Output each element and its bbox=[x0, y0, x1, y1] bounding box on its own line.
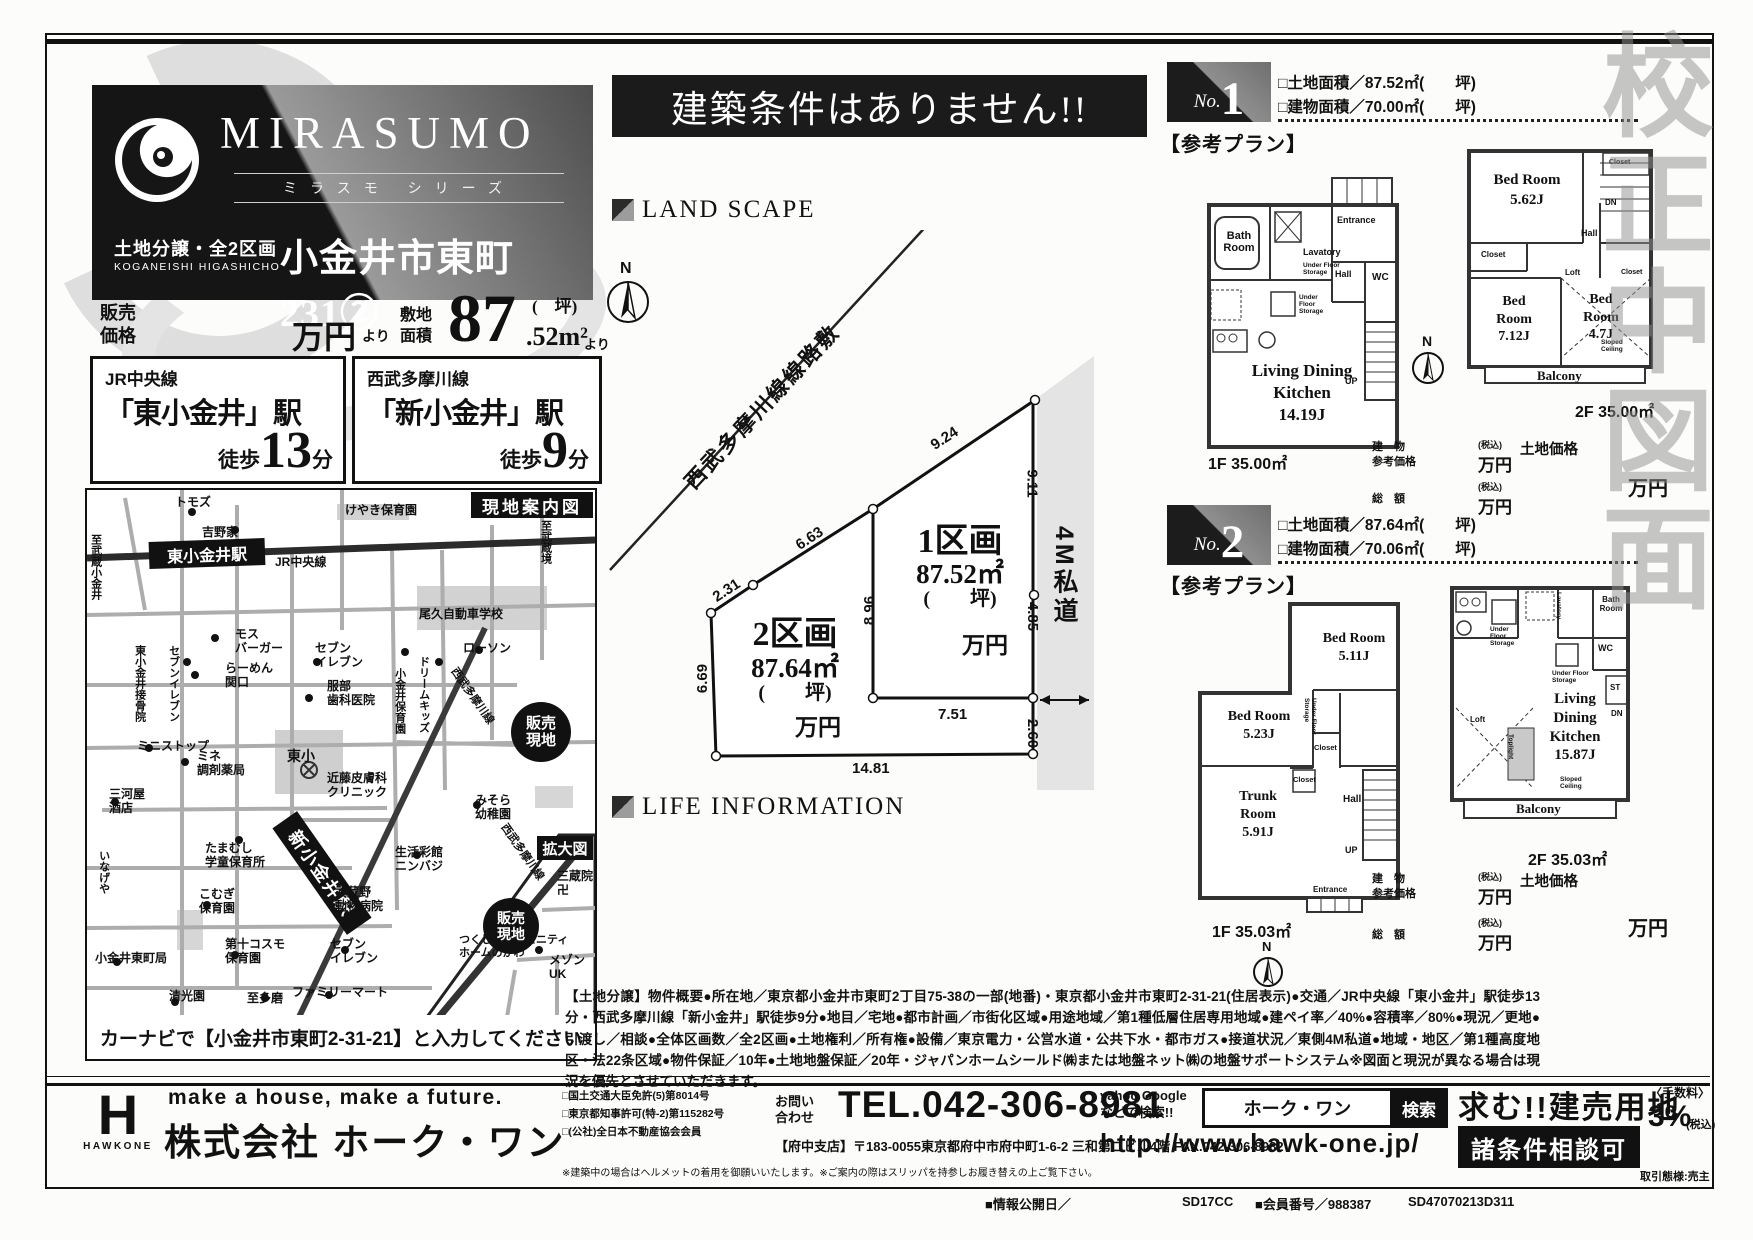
room-label-wc: WC bbox=[1372, 272, 1389, 283]
section-square-icon bbox=[612, 796, 634, 818]
plan1-1f-floorplan: Bath Room Lavatory Under Floor Storage E… bbox=[1207, 172, 1399, 467]
map-label: 三河屋 酒店 bbox=[109, 788, 145, 816]
brand-series: ミラスモ シリーズ bbox=[234, 173, 564, 203]
walk-unit: 分 bbox=[312, 449, 333, 472]
man-unit: 万円 bbox=[1478, 888, 1512, 907]
room-label-lavatory: Lavatory bbox=[1303, 248, 1341, 258]
search-hint: yahoo Google などで検索!! bbox=[1100, 1088, 1187, 1122]
map-label: 服部 歯科医院 bbox=[327, 680, 375, 708]
map-label: らーめん 関口 bbox=[225, 662, 273, 690]
plan1-ref-label: 【参考プラン】 bbox=[1160, 128, 1307, 157]
plan2-land-area: □土地面積／87.64㎡( 坪) bbox=[1278, 514, 1476, 538]
map-label: 小金井保育園 bbox=[393, 668, 406, 734]
member-number: ■会員番号／988387 bbox=[1255, 1194, 1371, 1213]
room-label-ufs2: Under Floor Storage bbox=[1299, 294, 1323, 315]
footer-slogan: make a house, make a future. bbox=[168, 1086, 503, 1110]
plan2-bldg-price-label: 建 物 参考価格 bbox=[1372, 872, 1416, 902]
room-label-closet: Closet bbox=[1481, 251, 1505, 260]
map-label: けやき保育園 bbox=[345, 504, 417, 518]
plan1-areas: □土地面積／87.52㎡( 坪) □建物面積／70.00㎡( 坪) bbox=[1278, 72, 1476, 120]
map-label: 至武蔵小金井 bbox=[89, 534, 102, 600]
rail-line-name: 西武多摩川線 bbox=[367, 365, 589, 390]
room-label-entrance: Entrance bbox=[1337, 216, 1376, 226]
dimension-label: 4.85 bbox=[1024, 602, 1041, 631]
north-label: N bbox=[620, 260, 632, 278]
man-unit: 万円 bbox=[1478, 498, 1512, 517]
fee-label: 〈手数料〉 bbox=[1650, 1084, 1710, 1101]
map-label: メゾン UK bbox=[549, 954, 585, 982]
plan1-bldg-area: □建物面積／70.00㎡( 坪) bbox=[1278, 96, 1476, 120]
map-label: モス バーガー bbox=[235, 628, 283, 656]
map-label: 吉野家 bbox=[202, 526, 238, 540]
map-label: 近藤皮膚科 クリニック bbox=[327, 772, 387, 800]
map-label: 生活彩館 ニンバジ bbox=[395, 846, 443, 874]
section-lifeinfo: LIFE INFORMATION bbox=[612, 793, 905, 821]
hawkone-logo: H HAWKONE bbox=[78, 1088, 158, 1152]
site-area-value: 87 bbox=[448, 284, 516, 352]
map-label: 東小 bbox=[287, 748, 315, 764]
room-label-loft: Loft bbox=[1470, 716, 1485, 725]
plot-drawing bbox=[600, 230, 1100, 790]
station-badge-higashikoganei: 東小金井駅 bbox=[149, 538, 266, 569]
license-list: □国土交通大臣免許(5)第8014号 □東京都知事許可(特-2)第115282号… bbox=[562, 1088, 724, 1142]
car-navi-note: カーナビで【小金井市東町2-31-21】と入力してください bbox=[85, 1015, 597, 1061]
lot2-tsubo: ( 坪) bbox=[730, 676, 860, 705]
plan2-ref-label: 【参考プラン】 bbox=[1160, 570, 1307, 599]
rail-line-name: JR中央線 bbox=[105, 365, 333, 390]
info-open-date: ■情報公開日／ bbox=[985, 1194, 1071, 1213]
doc-code-1: SD17CC bbox=[1182, 1194, 1233, 1209]
map-label: 尾久自動車学校 bbox=[419, 608, 503, 622]
map-label: JR中央線 bbox=[275, 556, 326, 570]
site-area-label: 敷地 面積 bbox=[400, 306, 432, 348]
website-url: http://www.hawk-one.jp/ bbox=[1100, 1128, 1420, 1159]
map-label: 清光園 bbox=[169, 990, 205, 1004]
section-landscape: LAND SCAPE bbox=[612, 196, 816, 224]
lot1-tsubo: ( 坪) bbox=[895, 582, 1025, 611]
flyer-page: MIRASUMO ミラスモ シリーズ 土地分譲・全2区画 KOGANEISHI … bbox=[0, 0, 1753, 1240]
map-title-badge: 現地案内図 bbox=[471, 492, 593, 518]
room-label-closet: Closet bbox=[1293, 776, 1316, 784]
plan1-number-badge: No. 1 bbox=[1167, 62, 1271, 122]
map-label: 三蔵院 卍 bbox=[557, 870, 593, 898]
plan2-total-label: 総 額 bbox=[1372, 928, 1405, 943]
svg-text:N: N bbox=[1262, 939, 1271, 954]
map-label: 武蔵野 動物病院 bbox=[335, 886, 383, 914]
room-label-hall: Hall bbox=[1335, 270, 1352, 280]
site-area-decimal: .52m² bbox=[526, 322, 588, 352]
room-label-closet: Closet bbox=[1314, 744, 1337, 752]
plan-no-value: 2 bbox=[1221, 523, 1245, 563]
map-label: こむぎ 保育園 bbox=[199, 888, 235, 916]
plan-no-prefix: No. bbox=[1194, 91, 1221, 113]
lot1-price: 万円 bbox=[962, 626, 1008, 660]
walk-label: 徒歩 bbox=[218, 449, 260, 472]
proof-watermark: 校正中図面 bbox=[1592, 28, 1704, 618]
plan1-land-price-label: 土地価格 bbox=[1520, 438, 1578, 459]
plan1-total-price: (税込)万円 bbox=[1478, 480, 1512, 518]
plan2-1f-floorplan: Bed Room 5.11J Bed Room 5.23J Trunk Room… bbox=[1195, 598, 1403, 916]
room-label-entrance: Entrance bbox=[1313, 886, 1347, 895]
access-box-seibu: 西武多摩川線 「新小金井」駅 徒歩9分 bbox=[352, 356, 602, 484]
sale-site-marker: 販売 現地 bbox=[483, 898, 539, 954]
doc-code-2: SD47070213D311 bbox=[1408, 1194, 1514, 1209]
sale-site-marker: 販売 現地 bbox=[511, 702, 571, 762]
map-label: 至武蔵境 bbox=[539, 520, 552, 564]
plan2-areas: □土地面積／87.64㎡( 坪) □建物面積／70.06㎡( 坪) bbox=[1278, 514, 1476, 562]
room-label-bath: Bath Room bbox=[1213, 230, 1265, 254]
man-unit: 万円 bbox=[1478, 934, 1512, 953]
hawkone-logo-text: HAWKONE bbox=[78, 1141, 158, 1152]
area-map: トモズ 吉野家 至武蔵小金井 東小金井駅 JR中央線 けやき保育園 現地案内図 … bbox=[85, 488, 597, 1019]
plan1-land-area: □土地面積／87.52㎡( 坪) bbox=[1278, 72, 1476, 96]
dotted-divider bbox=[1278, 561, 1638, 564]
private-road-label: 4M私道 bbox=[1038, 526, 1082, 627]
fee-tax-note: (税込) bbox=[1686, 1116, 1715, 1132]
room-label-loft: Loft bbox=[1565, 269, 1580, 278]
dotted-divider bbox=[1278, 119, 1638, 122]
top-rule bbox=[45, 39, 1714, 44]
land-plot-diagram: N 西武多摩川線線路敷 4M私道 9.24 6.63 2.31 6.69 8.9… bbox=[600, 230, 1100, 790]
room-label-balcony: Balcony bbox=[1516, 802, 1561, 816]
tax-note: (税込) bbox=[1478, 916, 1512, 929]
room-label-bed1: Bed Room 5.62J bbox=[1477, 171, 1577, 210]
plan-no-prefix: No. bbox=[1194, 534, 1221, 556]
compass-icon: N bbox=[1408, 332, 1448, 392]
room-label-sloped: Sloped Ceiling bbox=[1560, 776, 1582, 790]
inset-title-badge: 拡大図 bbox=[537, 836, 593, 860]
access-box-jr: JR中央線 「東小金井」駅 徒歩13分 bbox=[90, 356, 346, 484]
section-title: LIFE INFORMATION bbox=[642, 793, 905, 821]
walk-unit: 分 bbox=[568, 449, 589, 472]
room-label-bed2: Bed Room 5.23J bbox=[1209, 708, 1309, 744]
map-label: セブン イレブン bbox=[330, 938, 378, 966]
dimension-label: 7.51 bbox=[938, 706, 967, 723]
walk-minutes: 13 bbox=[260, 422, 312, 479]
walk-label: 徒歩 bbox=[500, 449, 542, 472]
plan1-total-label: 総 額 bbox=[1372, 492, 1405, 507]
room-label-ldk: Living Dining Kitchen 15.87J bbox=[1530, 690, 1620, 765]
conditions-badge: 諸条件相談可 bbox=[1458, 1126, 1640, 1168]
brand-panel: MIRASUMO ミラスモ シリーズ 土地分譲・全2区画 KOGANEISHI … bbox=[92, 85, 593, 300]
plan2-bldg-price: (税込)万円 bbox=[1478, 870, 1512, 908]
site-area-tsubo: ( 坪) bbox=[532, 292, 577, 317]
map-label: ファミリーマート bbox=[292, 986, 388, 1000]
tax-note: (税込) bbox=[1478, 480, 1512, 493]
room-label-ufs: Under Floor Storage bbox=[1552, 670, 1589, 684]
search-button: 検索 bbox=[1390, 1088, 1448, 1128]
man-unit: 万円 bbox=[1478, 456, 1512, 475]
price-unit: 万円 bbox=[292, 312, 356, 358]
no-building-condition-banner: 建築条件はありません!! bbox=[612, 75, 1147, 137]
room-label-balcony: Balcony bbox=[1537, 369, 1582, 383]
plan2-land-price-label: 土地価格 bbox=[1520, 870, 1578, 891]
room-label-hall: Hall bbox=[1343, 794, 1361, 805]
section-square-icon bbox=[612, 199, 634, 221]
map-label: セブン イレブン bbox=[315, 642, 363, 670]
room-label-trunk: Trunk Room 5.91J bbox=[1223, 788, 1293, 843]
plan1-1f-size: 1F 35.00㎡ bbox=[1208, 450, 1287, 474]
plan2-bldg-area: □建物面積／70.06㎡( 坪) bbox=[1278, 538, 1476, 562]
map-label: トモズ bbox=[175, 496, 211, 510]
map-label: セブンイレブン bbox=[167, 645, 180, 722]
room-label-up: UP bbox=[1345, 846, 1358, 856]
tax-note: (税込) bbox=[1478, 438, 1512, 451]
contact-label: お問い 合わせ bbox=[775, 1094, 814, 1125]
section-title: LAND SCAPE bbox=[642, 196, 816, 224]
plan1-bldg-price-label: 建 物 参考価格 bbox=[1372, 440, 1416, 470]
plan-no-value: 1 bbox=[1221, 80, 1245, 120]
lot-type-jp: 土地分譲・全2区画 bbox=[114, 235, 280, 261]
dimension-label: 9.11 bbox=[1024, 469, 1041, 497]
search-keyword-box: ホーク・ワン bbox=[1202, 1088, 1393, 1128]
svg-text:N: N bbox=[1422, 333, 1432, 349]
fee-value: 3% bbox=[1648, 1100, 1691, 1134]
room-label-ufs: Under Floor Storage bbox=[1303, 698, 1317, 735]
dimension-label: 2.60 bbox=[1024, 719, 1041, 748]
price-yori: より bbox=[362, 326, 390, 346]
transaction-type: 取引態様:売主 bbox=[1640, 1168, 1710, 1184]
mirasumo-logo-icon bbox=[108, 111, 206, 209]
room-label-ldk: Living Dining Kitchen 14.19J bbox=[1222, 360, 1382, 426]
dimension-label: 14.81 bbox=[852, 760, 890, 777]
map-label: 小金井東町局 bbox=[95, 952, 167, 966]
map-label: いなげや bbox=[97, 850, 110, 894]
visit-note: ※建築中の場合はヘルメットの着用を御願いいたします。※ご案内の際はスリッパを持参… bbox=[562, 1164, 1098, 1179]
dimension-label: 8.96 bbox=[861, 596, 878, 625]
room-label-ufs: Under Floor Storage bbox=[1490, 626, 1514, 647]
room-label-bed1: Bed Room 5.11J bbox=[1311, 630, 1397, 666]
plan2-number-badge: No. 2 bbox=[1167, 505, 1271, 565]
hawkone-logo-h: H bbox=[78, 1088, 158, 1141]
tax-note: (税込) bbox=[1478, 870, 1512, 883]
lot-type: 土地分譲・全2区画 KOGANEISHI HIGASHICHO bbox=[114, 235, 280, 273]
room-label-lavatory: Lavatory bbox=[1555, 592, 1562, 619]
room-label-wc: WC bbox=[1598, 644, 1613, 654]
map-label: ドリームキッズ bbox=[417, 656, 430, 733]
plan2-land-price-unit: 万円 bbox=[1628, 912, 1668, 941]
map-label: 東小金井接骨院 bbox=[133, 645, 146, 722]
room-label-toplight: Toplight bbox=[1507, 734, 1514, 759]
company-name: 株式会社 ホーク・ワン bbox=[164, 1112, 566, 1166]
plan2-total-price: (税込)万円 bbox=[1478, 916, 1512, 954]
lot2-price: 万円 bbox=[795, 708, 841, 742]
plan2-2f-size: 2F 35.03㎡ bbox=[1528, 846, 1607, 870]
price-label: 販売 価格 bbox=[100, 302, 136, 347]
map-label: ローソン bbox=[463, 642, 511, 656]
map-label: 至多磨 bbox=[247, 992, 283, 1006]
map-label: 第十コスモ 保育園 bbox=[225, 938, 285, 966]
walk-minutes: 9 bbox=[542, 422, 568, 479]
map-label: ミネ 調剤薬局 bbox=[197, 750, 245, 778]
plan1-bldg-price: (税込)万円 bbox=[1478, 438, 1512, 476]
room-label-bed2: Bed Room 7.12J bbox=[1479, 293, 1549, 346]
map-label: たまむし 学童保育所 bbox=[205, 842, 265, 870]
map-label: みそら 幼稚園 bbox=[475, 794, 511, 822]
dimension-label: 6.69 bbox=[694, 664, 711, 693]
lot-type-romaji: KOGANEISHI HIGASHICHO bbox=[114, 261, 280, 273]
brand-logotype: MIRASUMO bbox=[220, 107, 540, 159]
